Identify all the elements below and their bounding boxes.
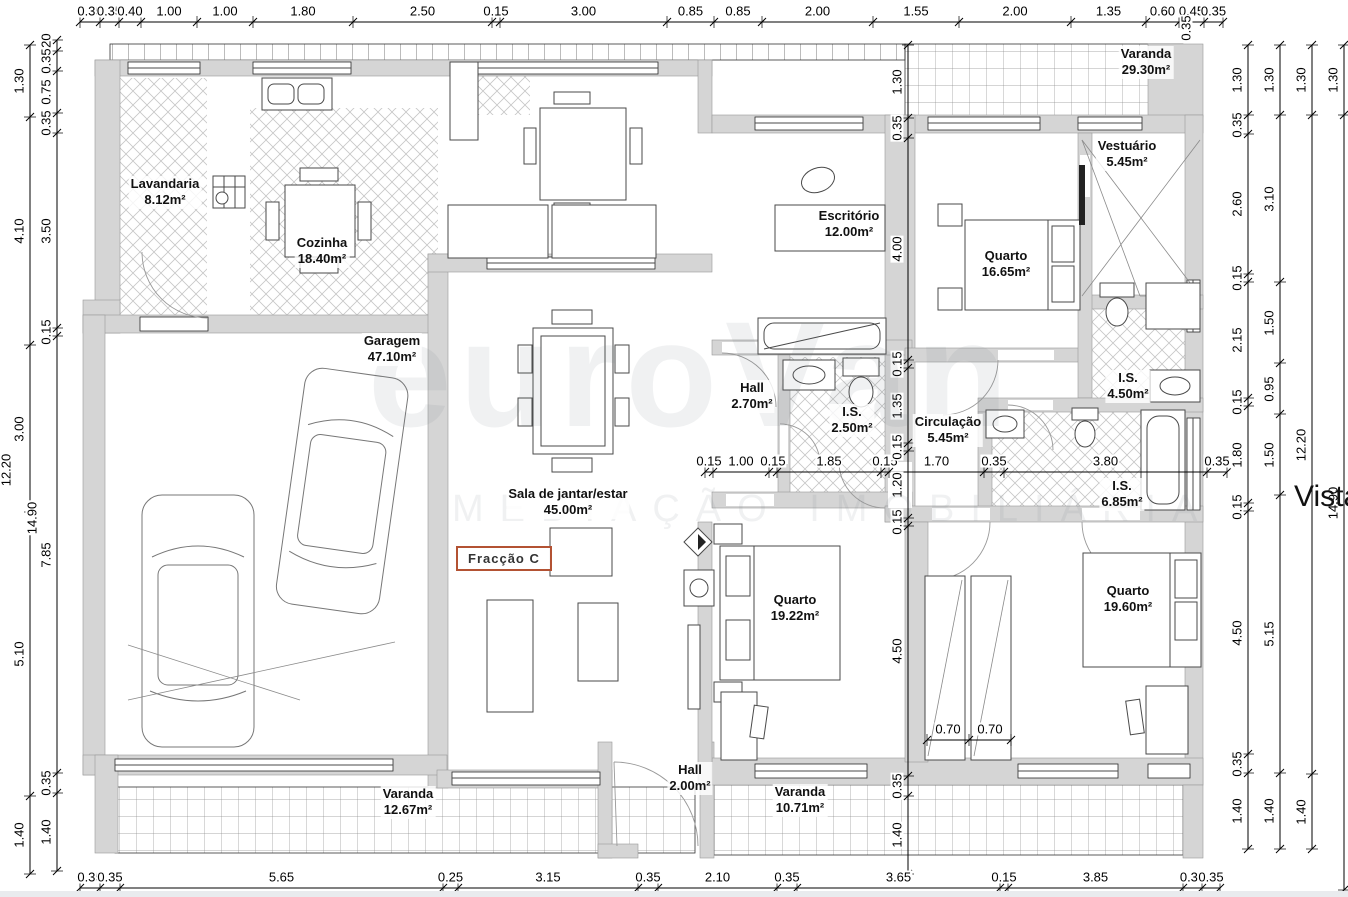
room-label-cozinha: Cozinha18.40m²: [295, 235, 350, 268]
dimension-label: 0.35: [891, 114, 904, 141]
dimension-label: 0.35: [40, 769, 53, 796]
dimension-label: 0.40: [116, 5, 143, 18]
dimension-label: 3.85: [1082, 871, 1109, 884]
dimension-label: 1.50: [1263, 441, 1276, 468]
dimension-label: 2.50: [409, 5, 436, 18]
room-label-circulacao: Circulação5.45m²: [913, 414, 983, 447]
dimension-label: 2.10: [704, 871, 731, 884]
bottom-bar: [0, 891, 1348, 897]
dimension-label: 4.10: [13, 217, 26, 244]
room-label-quarto-1960: Quarto19.60m²: [1102, 583, 1154, 616]
dimension-label: 2.15: [1231, 326, 1244, 353]
room-label-is-685: I.S.6.85m²: [1099, 478, 1144, 511]
dimension-label: 0.25: [437, 871, 464, 884]
dimension-label: 0.15: [990, 871, 1017, 884]
vista-label: Vista: [1294, 480, 1348, 514]
dimension-label: 12.20: [0, 453, 13, 488]
dimension-label: 0.35: [1197, 871, 1224, 884]
dimension-label: 1.50: [1263, 309, 1276, 336]
dimension-label: 0.15: [40, 318, 53, 345]
dimension-label: 3.50: [40, 217, 53, 244]
dimension-label: 1.00: [211, 5, 238, 18]
dimension-label: 0.60: [1149, 5, 1176, 18]
dimension-label: 4.00: [891, 235, 904, 262]
dimension-label: 0.15: [1231, 388, 1244, 415]
dimension-label: 3.15: [534, 871, 561, 884]
dimension-label: 0.70: [976, 723, 1003, 736]
floorplan-canvas: 0.350.350.401.001.001.802.500.153.000.85…: [0, 0, 1348, 897]
dimension-label: 14.90: [26, 501, 39, 536]
room-label-varanda-1071: Varanda10.71m²: [773, 784, 828, 817]
dimension-label: 0.85: [724, 5, 751, 18]
room-label-is-450: I.S.4.50m²: [1105, 370, 1150, 403]
dimension-label: 1.40: [1295, 798, 1308, 825]
dimension-label: 0.35: [634, 871, 661, 884]
dimension-label: 0.35: [1180, 14, 1193, 41]
dimension-label: 1.35: [1095, 5, 1122, 18]
dimension-label: 4.50: [1231, 619, 1244, 646]
dimension-label: 5.10: [13, 640, 26, 667]
dimension-label: 4.50: [891, 637, 904, 664]
dimension-label: 3.80: [1092, 455, 1119, 468]
dimension-label: 1.80: [1231, 441, 1244, 468]
dimension-label: 3.10: [1263, 185, 1276, 212]
dimension-label: 12.20: [1295, 427, 1308, 462]
dimension-label: 0.35: [40, 109, 53, 136]
dimension-label: 3.00: [570, 5, 597, 18]
room-label-quarto-1665: Quarto16.65m²: [980, 248, 1032, 281]
dimension-label: 0.35: [1203, 455, 1230, 468]
dimension-label: 0.95: [1263, 375, 1276, 402]
dimension-label: 0.35: [96, 871, 123, 884]
dimension-label: 0.35: [891, 772, 904, 799]
dimension-label: 1.40: [891, 821, 904, 848]
room-label-hall-200: Hall2.00m²: [667, 762, 712, 795]
room-label-varanda-1267: Varanda12.67m²: [381, 786, 436, 819]
dimension-label: 5.15: [1263, 620, 1276, 647]
dimension-label: 1.40: [40, 818, 53, 845]
room-label-lavandaria: Lavandaria8.12m²: [129, 176, 202, 209]
dimension-label: 1.30: [1231, 66, 1244, 93]
dimension-label: 5.65: [268, 871, 295, 884]
room-label-varanda-2930: Varanda29.30m²: [1119, 46, 1174, 79]
room-label-hall-270: Hall2.70m²: [729, 380, 774, 413]
room-label-vestuario: Vestuário5.45m²: [1096, 138, 1159, 171]
dimension-label: 1.30: [13, 67, 26, 94]
room-label-garagem: Garagem47.10m²: [362, 333, 422, 366]
dimension-label: 1.55: [902, 5, 929, 18]
room-label-sala: Sala de jantar/estar45.00m²: [506, 486, 629, 519]
fraction-label: Fracção C: [456, 546, 552, 571]
dimension-label: 0.35: [1231, 111, 1244, 138]
dimension-label: 3.00: [13, 415, 26, 442]
dimension-label: 0.85: [677, 5, 704, 18]
dimension-label: 0.75: [40, 78, 53, 105]
dimension-label: 0.15: [1231, 493, 1244, 520]
dimension-label: 1.30: [1295, 66, 1308, 93]
dimension-label: 1.80: [289, 5, 316, 18]
dimension-label: 2.60: [1231, 190, 1244, 217]
room-label-quarto-1922: Quarto19.22m²: [769, 592, 821, 625]
room-label-is-250: I.S.2.50m²: [829, 404, 874, 437]
dimension-label: 2.00: [804, 5, 831, 18]
dimension-label: 1.30: [1263, 66, 1276, 93]
dimension-label: 1.00: [155, 5, 182, 18]
dimension-label: 0.35: [773, 871, 800, 884]
dimension-label: 0.15: [482, 5, 509, 18]
dimension-label: 1.30: [1327, 66, 1340, 93]
dimension-label: 2.00: [1001, 5, 1028, 18]
dimension-label: 0.70: [934, 723, 961, 736]
dimension-label: 1.30: [891, 68, 904, 95]
dimension-label: 7.85: [40, 541, 53, 568]
dimension-label: 1.40: [13, 821, 26, 848]
room-label-escritorio: Escritório12.00m²: [817, 208, 882, 241]
dimension-label: 3.65: [885, 871, 912, 884]
dimension-label: 1.40: [1263, 797, 1276, 824]
dimension-label: 0.35: [40, 47, 53, 74]
dimension-label: 0.15: [1231, 264, 1244, 291]
dimension-label: 0.35: [1231, 750, 1244, 777]
dimension-label: 0.35: [1200, 5, 1227, 18]
dimension-label: 1.40: [1231, 797, 1244, 824]
